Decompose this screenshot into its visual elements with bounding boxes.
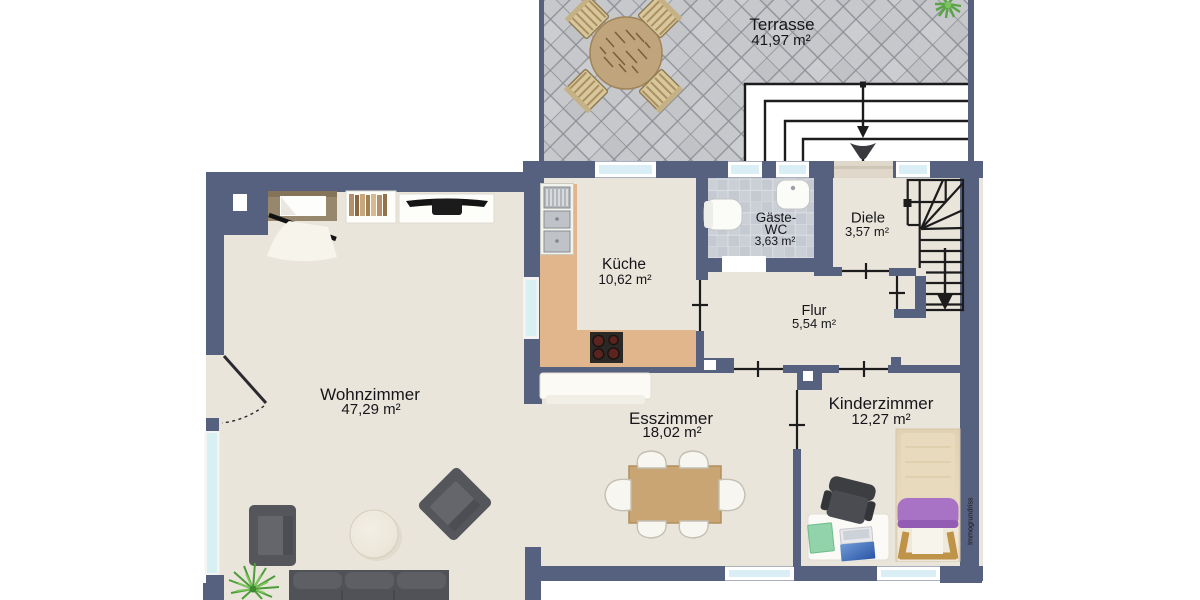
svg-text:47,29 m²: 47,29 m² (341, 401, 400, 418)
svg-text:12,27 m²: 12,27 m² (851, 411, 910, 428)
svg-text:10,62 m²: 10,62 m² (598, 272, 652, 287)
svg-text:Immogrundriss: Immogrundriss (966, 497, 975, 545)
svg-text:5,54 m²: 5,54 m² (792, 316, 837, 331)
svg-text:3,63 m²: 3,63 m² (755, 234, 796, 248)
svg-text:Küche: Küche (602, 256, 646, 273)
svg-text:41,97 m²: 41,97 m² (751, 32, 810, 49)
svg-text:18,02 m²: 18,02 m² (642, 424, 701, 441)
svg-text:3,57 m²: 3,57 m² (845, 224, 890, 239)
